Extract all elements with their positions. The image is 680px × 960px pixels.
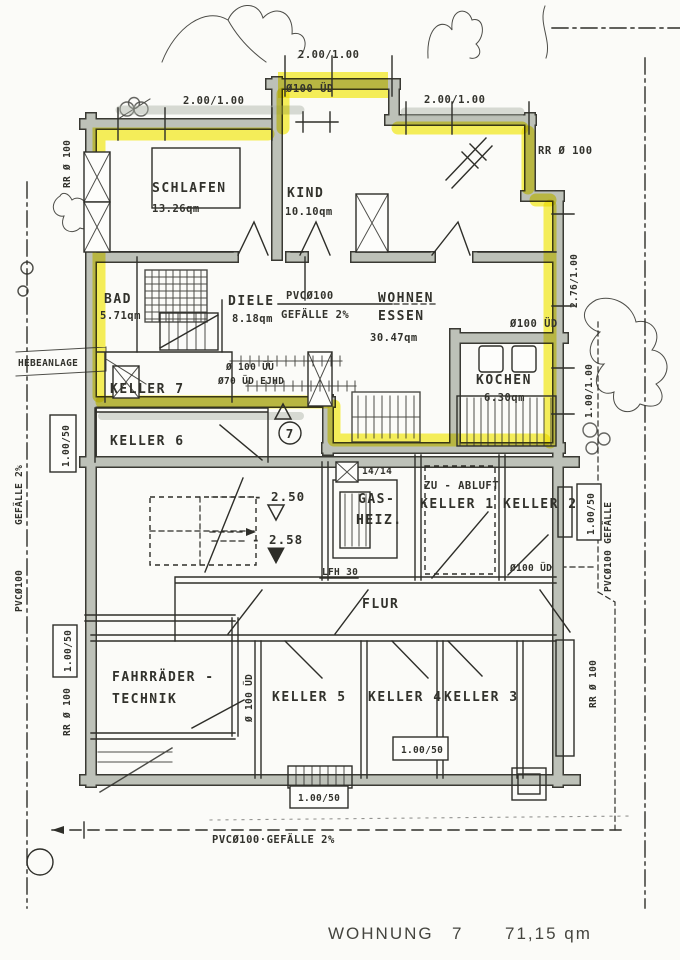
title-label: WOHNUNG bbox=[328, 924, 434, 943]
room-label-keller3: KELLER 3 bbox=[444, 690, 519, 705]
room-label-technik: TECHNIK bbox=[112, 692, 177, 707]
room-label-flur: FLUR bbox=[362, 597, 399, 612]
bath-tiles bbox=[145, 270, 207, 322]
pipe-ued-keller5: Ø 100 ÜD bbox=[244, 674, 255, 723]
dim-left-upper: 1.00/50 bbox=[61, 425, 72, 467]
room-label-keller1: KELLER 1 bbox=[420, 497, 495, 512]
room-area-diele: 8.18qm bbox=[232, 313, 273, 325]
level-triangle-filled bbox=[268, 548, 284, 563]
dim-keller4: 1.00/50 bbox=[401, 745, 443, 756]
pipe-rr-top-right: RR Ø 100 bbox=[538, 145, 593, 157]
pipe-gefaelle-left: GEFÄLLE 2% bbox=[14, 465, 25, 525]
room-area-bad: 5.71qm bbox=[100, 310, 141, 322]
room-label-keller5: KELLER 5 bbox=[272, 690, 347, 705]
label-hebeanlage: HEBEANLAGE bbox=[18, 358, 78, 369]
pipe-uue-1: Ø 100 ÜÜ bbox=[225, 362, 274, 373]
room-area-schlafen: 13.26qm bbox=[152, 203, 200, 215]
room-area-wohnen: 30.47qm bbox=[370, 332, 418, 344]
stairs-lower-dashed bbox=[150, 478, 256, 572]
dim-entry: 1.00/50 bbox=[298, 793, 340, 804]
title-area: 71,15 qm bbox=[505, 924, 592, 943]
pipe-rr-right: RR Ø 100 bbox=[588, 660, 599, 708]
pipe-rr-top-left: RR Ø 100 bbox=[62, 140, 73, 188]
pipe-ued-kochen: Ø100 ÜD bbox=[509, 316, 558, 330]
title-block: WOHNUNG 7 71,15 qm bbox=[328, 924, 592, 943]
pipe-pvc-right: PVCØ100 GEFÄLLE bbox=[603, 502, 614, 592]
room-label-keller7: KELLER 7 bbox=[110, 382, 185, 397]
dim-top-center: 2.00/1.00 bbox=[298, 49, 359, 61]
level-upper: - 2.50 bbox=[254, 489, 305, 504]
pipe-pvc-wohnen-1: PVCØ100 bbox=[286, 290, 334, 302]
room-label-kochen: KOCHEN bbox=[476, 373, 532, 388]
room-label-bad: BAD bbox=[104, 292, 132, 307]
slope-symbol bbox=[446, 138, 492, 188]
floor-plan-drawing: SCHLAFEN 13.26qm KIND 10.10qm BAD 5.71qm… bbox=[0, 0, 680, 960]
room-label-keller6: KELLER 6 bbox=[110, 434, 185, 449]
room-label-schlafen: SCHLAFEN bbox=[152, 181, 227, 196]
dim-top-left: 2.00/1.00 bbox=[183, 95, 244, 107]
room-label-fahrraeder: FAHRRÄDER - bbox=[112, 669, 215, 685]
label-lfh: LFH 30 bbox=[322, 567, 358, 578]
bed-symbol bbox=[152, 148, 240, 208]
scanned-floor-plan: SCHLAFEN 13.26qm KIND 10.10qm BAD 5.71qm… bbox=[0, 0, 680, 960]
room-area-kind: 10.10qm bbox=[285, 206, 333, 218]
dim-left-lower: 1.00/50 bbox=[63, 630, 74, 672]
room-label-keller2: KELLER 2 bbox=[503, 497, 578, 512]
room-label-wohnen: WOHNEN bbox=[378, 291, 434, 306]
arrow-head bbox=[52, 826, 64, 834]
room-label-kind: KIND bbox=[287, 186, 324, 201]
label-zu-abluft: ZU - ABLUFT bbox=[424, 480, 499, 492]
pipe-ued-top: Ø100 ÜD bbox=[285, 81, 334, 95]
dim-right-upper: 2.76/1.00 bbox=[569, 254, 580, 308]
dim-top-right: 2.00/1.00 bbox=[424, 94, 485, 106]
unit-number: 7 bbox=[286, 426, 295, 441]
pipe-pvc-left: PVCØ100 bbox=[14, 570, 25, 612]
dim-right-box: 1.00/50 bbox=[586, 493, 597, 535]
room-label-diele: DIELE bbox=[228, 294, 275, 309]
pipe-uue-2: Ø70 ÜD EJHD bbox=[217, 376, 284, 387]
pipe-rr-left: RR Ø 100 bbox=[62, 688, 73, 736]
level-triangle-open bbox=[268, 505, 284, 520]
level-lower: - 2.58 bbox=[252, 532, 303, 547]
room-label-essen: ESSEN bbox=[378, 309, 425, 324]
room-label-keller4: KELLER 4 bbox=[368, 690, 443, 705]
title-number: 7 bbox=[452, 924, 463, 943]
pipe-pvc-wohnen-2: GEFÄLLE 2% bbox=[281, 307, 349, 321]
pipe-ued-keller2: Ø100 ÜD bbox=[509, 563, 552, 574]
room-area-kochen: 6.30qm bbox=[484, 392, 525, 404]
pipe-pvc-bottom: PVCØ100·GEFÄLLE 2% bbox=[212, 832, 335, 846]
dim-right-mid: 1.00/1.00 bbox=[584, 364, 595, 418]
room-label-gas: GAS- bbox=[358, 492, 395, 507]
site-circle-marker bbox=[27, 849, 53, 875]
table-symbol bbox=[296, 112, 338, 132]
dim-flue: 14/14 bbox=[362, 466, 392, 477]
room-label-heiz: HEIZ. bbox=[356, 513, 403, 528]
